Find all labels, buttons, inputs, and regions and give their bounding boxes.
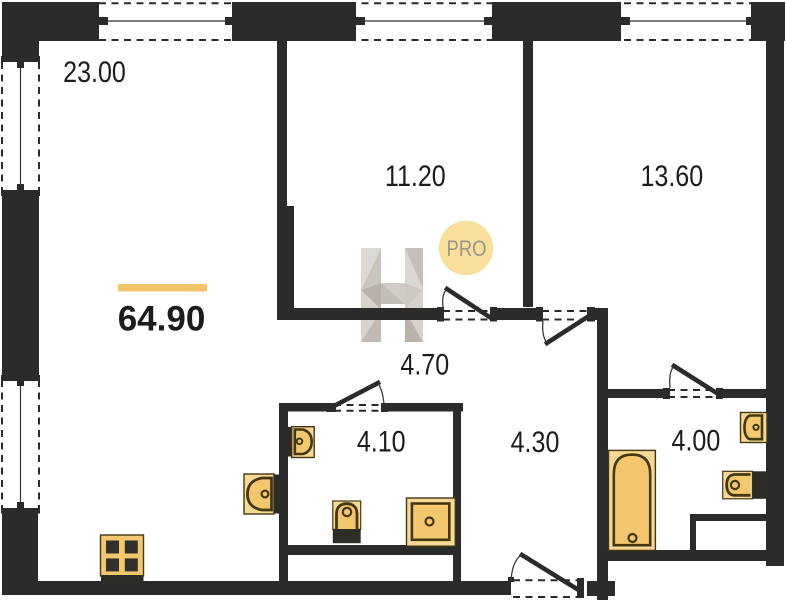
svg-text:64.90: 64.90 [118, 300, 206, 339]
svg-text:4.00: 4.00 [672, 424, 721, 457]
svg-text:PRO: PRO [446, 237, 486, 261]
svg-text:13.60: 13.60 [640, 159, 703, 192]
svg-text:4.10: 4.10 [357, 425, 406, 458]
svg-text:23.00: 23.00 [63, 55, 126, 88]
svg-text:4.30: 4.30 [511, 425, 560, 458]
svg-text:4.70: 4.70 [400, 347, 449, 380]
svg-text:11.20: 11.20 [385, 159, 446, 192]
